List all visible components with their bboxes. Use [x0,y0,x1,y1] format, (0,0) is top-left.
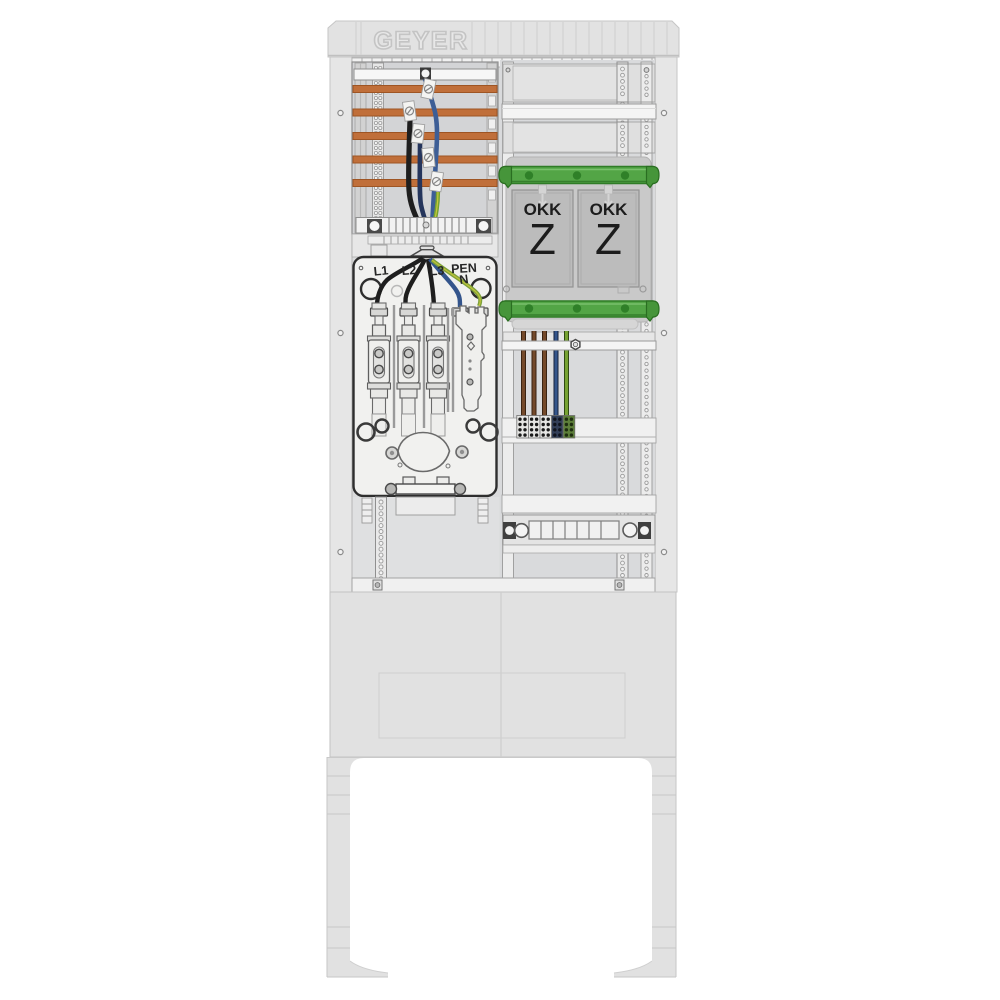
svg-text:N: N [458,272,469,287]
svg-text:L2: L2 [401,263,417,278]
svg-text:L3: L3 [429,264,445,279]
svg-text:Z: Z [529,215,556,264]
svg-text:Z: Z [595,215,622,264]
svg-text:GEYER: GEYER [373,27,468,55]
svg-text:L1: L1 [373,263,389,278]
